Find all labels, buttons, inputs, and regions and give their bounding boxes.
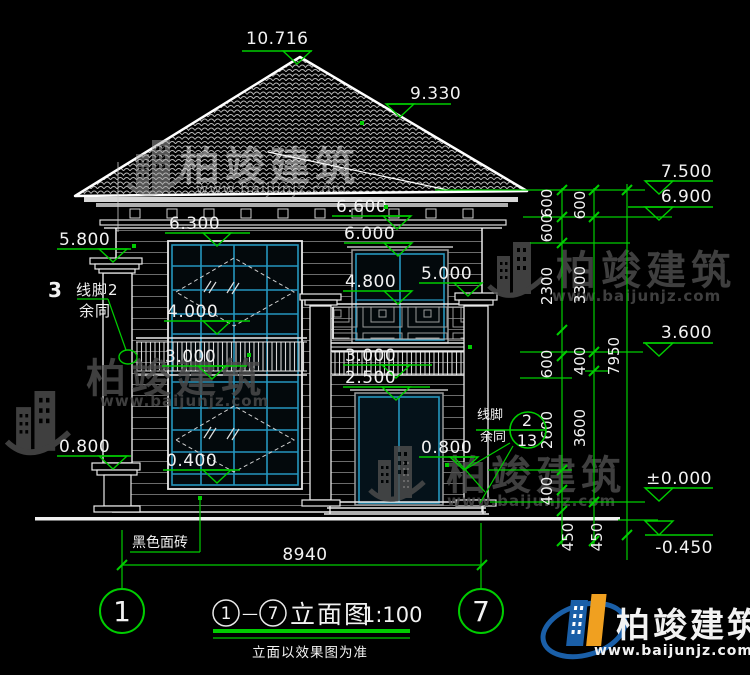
dim-label: 2300: [538, 267, 556, 305]
elevation-value: 5.000: [421, 264, 472, 284]
brand-logo: 柏竣建筑 www.baijunjz.com: [537, 594, 750, 666]
drawing-note: 立面以效果图为准: [252, 645, 368, 661]
elevation-value: 9.330: [410, 84, 461, 104]
material-label: 黑色面砖: [132, 534, 188, 551]
axis-number: 7: [472, 595, 490, 628]
marker-eave: 6.900: [628, 187, 713, 220]
elevation-value: 6.900: [661, 187, 712, 207]
dim-label: 450: [588, 523, 606, 552]
title-separator: —: [242, 604, 258, 623]
title-block: 1 — 7 立面图 1:100 立面以效果图为准: [213, 600, 423, 661]
elevation-value: 5.800: [59, 230, 110, 250]
watermark-url: www.baijunjz.com: [196, 180, 347, 198]
watermark-right: 柏竣建筑 www.baijunjz.com: [489, 242, 736, 305]
drawing-canvas: 柏竣建筑 www.baijunjz.com 柏竣建筑 www.baijunjz.…: [0, 0, 750, 675]
molding-label: 线脚: [477, 407, 503, 423]
eave-cornice: [84, 197, 518, 228]
title-circle-left-number: 1: [221, 604, 232, 624]
balcony-railing: [330, 304, 470, 339]
dim-overall-width: 8940: [282, 545, 327, 565]
marker-second-floor: 3.600: [643, 323, 713, 356]
brand-url: www.baijunjz.com: [594, 643, 750, 659]
brand-name: 柏竣建筑: [616, 606, 750, 646]
dim-label: 600: [538, 350, 556, 379]
molding-label: 余同: [480, 429, 506, 445]
overall-width-dimension: 8940: [117, 523, 487, 589]
molding-label: 线脚2: [76, 281, 119, 299]
dim-label: 3300: [571, 266, 589, 304]
marker-ground-floor: ±0.000: [645, 469, 713, 501]
detail-number: 2: [522, 411, 532, 430]
elevation-value: 0.800: [421, 438, 472, 458]
elevation-value: 6.600: [336, 197, 387, 217]
dim-label: 400: [571, 347, 589, 376]
elevation-value: 0.400: [166, 451, 217, 471]
dim-label: 3600: [571, 409, 589, 447]
elevation-value: 3.000: [165, 347, 216, 367]
dim-label: 7950: [605, 337, 623, 375]
axis-number: 1: [113, 595, 131, 628]
elevation-value: 6.000: [344, 224, 395, 244]
elevation-value: 4.000: [167, 302, 218, 322]
dim-label: 600: [538, 214, 556, 243]
elevation-value: 2.500: [345, 368, 396, 388]
axis-bubble-7: 7: [459, 589, 503, 633]
elevation-value: -0.450: [655, 538, 713, 558]
title-circle-right-number: 7: [268, 604, 279, 624]
drawing-scale: 1:100: [362, 603, 423, 627]
dim-label: 450: [559, 523, 577, 552]
elevation-value: ±0.000: [646, 469, 712, 489]
drawing-title: 立面图: [290, 600, 371, 629]
dim-label: 600: [538, 189, 556, 218]
elevation-value: 7.500: [661, 162, 712, 182]
axis-bubble-1: 1: [100, 589, 144, 633]
elevation-value: 3.000: [345, 346, 396, 366]
elevation-value: 6.300: [169, 214, 220, 234]
elevation-value: 3.600: [661, 323, 712, 343]
marker-site-ground: -0.450: [645, 521, 713, 558]
ground-line: [35, 517, 620, 521]
watermark-url: www.baijunjz.com: [100, 392, 269, 410]
dim-label: 600: [571, 191, 589, 220]
watermark-url: www.baijunjz.com: [447, 492, 616, 510]
logo-buildings: [566, 594, 606, 646]
watermark-roof: 柏竣建筑 www.baijunjz.com: [128, 140, 360, 198]
elevation-value: 4.800: [345, 272, 396, 292]
cad-elevation-drawing: 柏竣建筑 www.baijunjz.com 柏竣建筑 www.baijunjz.…: [0, 0, 750, 675]
axis-note-number: 3: [48, 278, 62, 302]
marker-roof-slope: 9.330: [386, 84, 461, 117]
molding-label: 余同: [79, 302, 111, 320]
detail-sheet-number: 13: [517, 431, 537, 450]
elevation-value: 0.800: [59, 437, 110, 457]
title-underline-thick: [213, 629, 410, 633]
dim-label: 400: [538, 477, 556, 506]
elevation-value: 10.716: [246, 29, 308, 49]
